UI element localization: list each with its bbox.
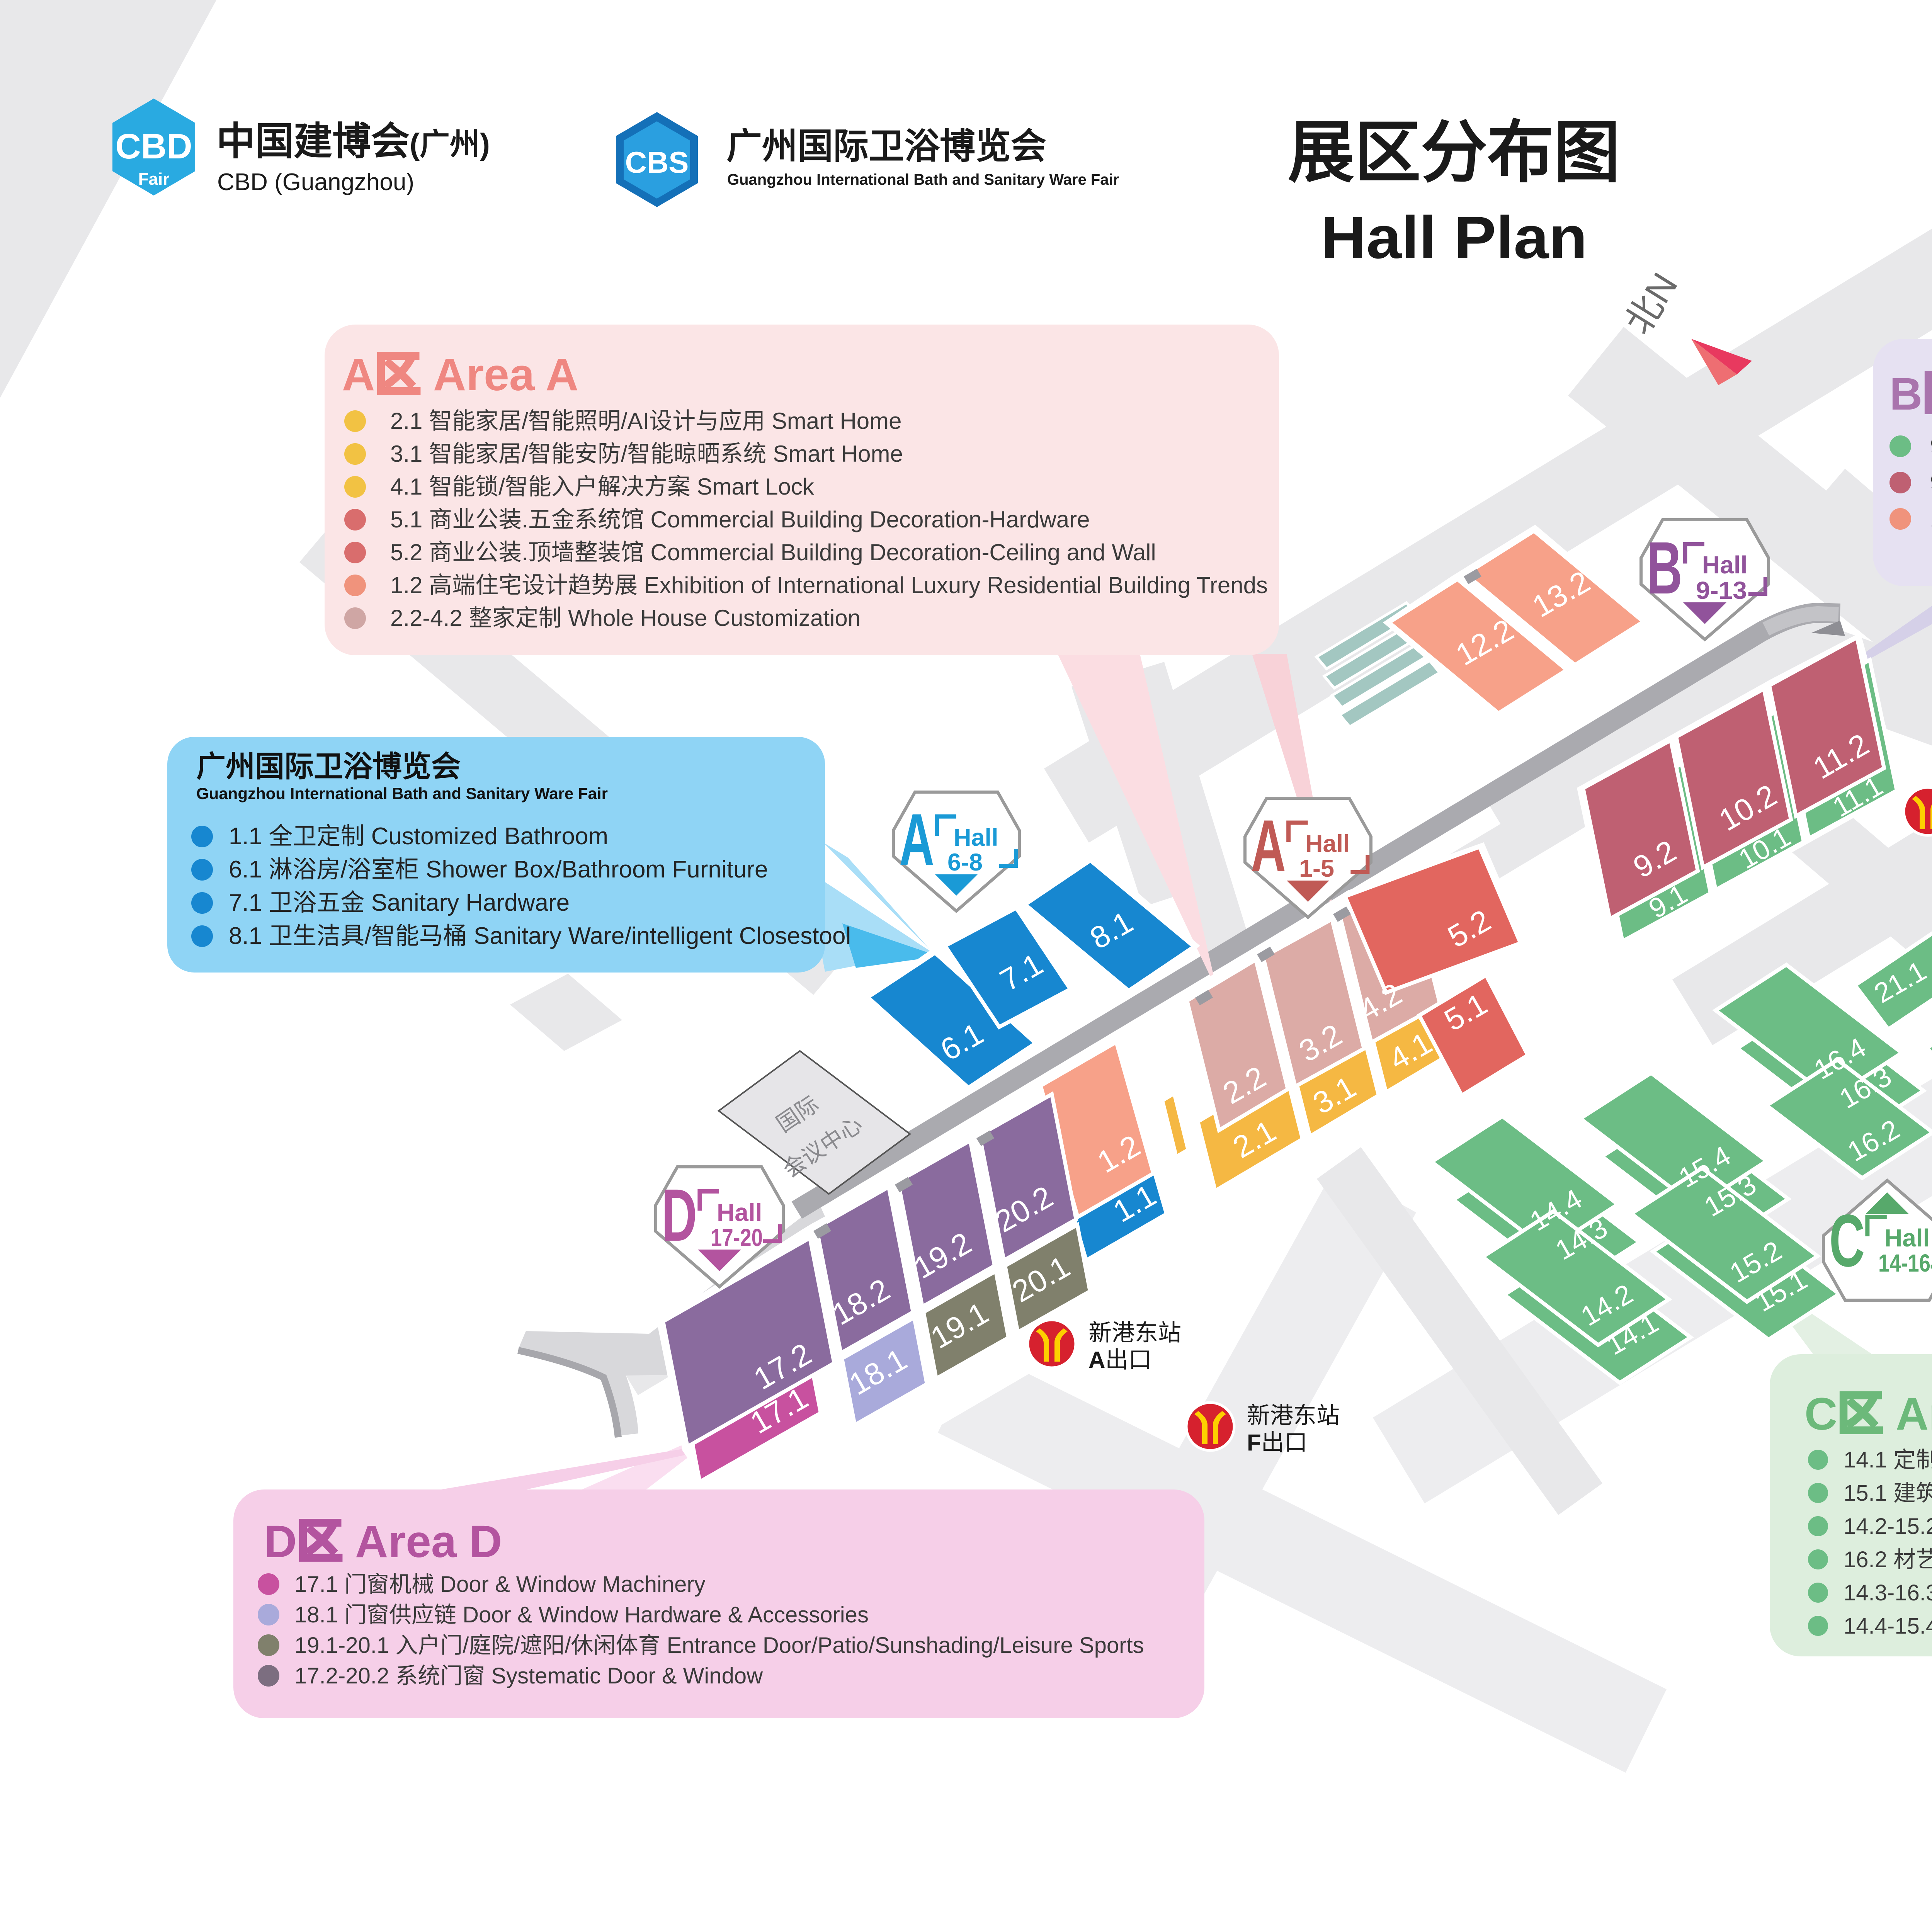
svg-text:16.2 材艺·国际馆 International Hall: 16.2 材艺·国际馆 International Hall -Hardware… <box>1844 1547 1932 1572</box>
svg-text:新港东站: 新港东站 <box>1088 1320 1181 1346</box>
svg-text:6-8: 6-8 <box>947 849 983 876</box>
svg-text:C: C <box>1829 1199 1865 1282</box>
svg-text:9.2-11.2 设计定制馆 Design Customiz: 9.2-11.2 设计定制馆 Design Customization <box>1930 469 1932 495</box>
svg-text:7.1 卫浴五金 Sanitary Hardware: 7.1 卫浴五金 Sanitary Hardware <box>229 889 570 916</box>
svg-text:Fair: Fair <box>138 170 170 189</box>
svg-text:D区 Area D: D区 Area D <box>264 1516 502 1567</box>
svg-text:F出口: F出口 <box>1247 1430 1308 1455</box>
svg-text:12.2-13.2 涂料软装馆 Coating & Furn: 12.2-13.2 涂料软装馆 Coating & Furnishing <box>1930 506 1932 532</box>
svg-text:14-16: 14-16 <box>1878 1249 1930 1277</box>
svg-text:CBD: CBD <box>115 127 192 166</box>
svg-text:14.3-16.3 家居材料 Interior Decora: 14.3-16.3 家居材料 Interior Decorative Mater… <box>1844 1580 1932 1605</box>
svg-text:C区 Area C: C区 Area C <box>1804 1389 1932 1440</box>
svg-text:3.1 智能家居/智能安防/智能晾晒系统 Smart Hom: 3.1 智能家居/智能安防/智能晾晒系统 Smart Home <box>390 441 903 467</box>
svg-text:5.2 商业公装.顶墙整装馆 Commercial Buil: 5.2 商业公装.顶墙整装馆 Commercial Building Decor… <box>390 539 1156 565</box>
svg-text:A出口: A出口 <box>1088 1347 1151 1373</box>
svg-text:展区分布图: 展区分布图 <box>1288 115 1620 190</box>
svg-text:Hall: Hall <box>1305 830 1350 857</box>
svg-text:CBS: CBS <box>625 145 689 179</box>
svg-text:A: A <box>899 799 934 881</box>
svg-text:14.1 定制五金 Furniture Hardware: 14.1 定制五金 Furniture Hardware <box>1844 1447 1932 1472</box>
svg-text:2.1 智能家居/智能照明/AI设计与应用 Smart Ho: 2.1 智能家居/智能照明/AI设计与应用 Smart Home <box>390 408 902 434</box>
svg-text:广州国际卫浴博览会: 广州国际卫浴博览会 <box>726 127 1046 166</box>
svg-text:18.1 门窗供应链 Door & Window Hard: 18.1 门窗供应链 Door & Window Hardware & Acce… <box>294 1602 869 1627</box>
svg-text:9-13: 9-13 <box>1696 576 1747 604</box>
svg-text:Hall: Hall <box>1884 1224 1930 1252</box>
svg-text:6.1 淋浴房/浴室柜 Shower Box/Bathroo: 6.1 淋浴房/浴室柜 Shower Box/Bathroom Furnitur… <box>229 856 768 883</box>
svg-text:Guangzhou International Bath a: Guangzhou International Bath and Sanitar… <box>727 171 1119 188</box>
svg-text:1.1 全卫定制 Customized Bathroom: 1.1 全卫定制 Customized Bathroom <box>229 823 608 850</box>
svg-text:8.1 卫生洁具/智能马桶 Sanitary Ware/in: 8.1 卫生洁具/智能马桶 Sanitary Ware/intelligent … <box>229 923 851 949</box>
svg-text:15.1 建筑装饰五金 Decorative Hardwar: 15.1 建筑装饰五金 Decorative Hardware <box>1844 1481 1932 1506</box>
svg-text:广州国际卫浴博览会: 广州国际卫浴博览会 <box>196 750 461 783</box>
svg-text:19.1-20.1 入户门/庭院/遮阳/休闲体育 Entra: 19.1-20.1 入户门/庭院/遮阳/休闲体育 Entrance Door/P… <box>294 1633 1144 1658</box>
svg-text:14.2-15.2 定制五金 Furniture Hardw: 14.2-15.2 定制五金 Furniture Hardware <box>1844 1514 1932 1539</box>
svg-text:14.4-15.4 材料/五金 Material & Har: 14.4-15.4 材料/五金 Material & Hardware <box>1844 1614 1932 1639</box>
svg-text:1-5: 1-5 <box>1299 855 1334 882</box>
svg-text:新港东站: 新港东站 <box>1247 1403 1340 1428</box>
svg-text:B区 Area B: B区 Area B <box>1889 369 1932 420</box>
svg-text:Hall Plan: Hall Plan <box>1321 204 1587 271</box>
svg-text:9.1-11.1 智造装备馆 Woodworking Mac: 9.1-11.1 智造装备馆 Woodworking Machinery <box>1930 433 1932 459</box>
svg-text:1.2 高端住宅设计趋势展 Exhibition of In: 1.2 高端住宅设计趋势展 Exhibition of Internationa… <box>390 572 1268 598</box>
svg-text:A: A <box>1251 805 1286 887</box>
svg-text:5.1 商业公装.五金系统馆 Commercial Buil: 5.1 商业公装.五金系统馆 Commercial Building Decor… <box>390 507 1090 532</box>
svg-text:中国建博会(广州): 中国建博会(广州) <box>216 120 490 163</box>
svg-text:17.1 门窗机械 Door & Window Machi: 17.1 门窗机械 Door & Window Machinery <box>294 1572 706 1597</box>
svg-text:Hall: Hall <box>1702 551 1747 579</box>
svg-text:A区 Area A: A区 Area A <box>342 349 578 400</box>
svg-text:Hall: Hall <box>954 824 998 851</box>
svg-text:CBD (Guangzhou): CBD (Guangzhou) <box>217 169 414 196</box>
svg-text:2.2-4.2 整家定制 Whole House Custo: 2.2-4.2 整家定制 Whole House Customization <box>390 605 861 631</box>
svg-text:17-20: 17-20 <box>711 1224 763 1251</box>
svg-text:北N: 北N <box>1617 266 1686 341</box>
svg-text:B: B <box>1647 526 1682 609</box>
svg-text:Guangzhou International Bath a: Guangzhou International Bath and Sanitar… <box>196 784 608 803</box>
svg-text:Hall: Hall <box>717 1199 762 1226</box>
svg-text:17.2-20.2 系统门窗 Systematic Door: 17.2-20.2 系统门窗 Systematic Door & Window <box>294 1663 763 1688</box>
svg-text:D: D <box>662 1173 697 1256</box>
svg-text:4.1 智能锁/智能入户解决方案 Smart Lock: 4.1 智能锁/智能入户解决方案 Smart Lock <box>390 474 815 500</box>
